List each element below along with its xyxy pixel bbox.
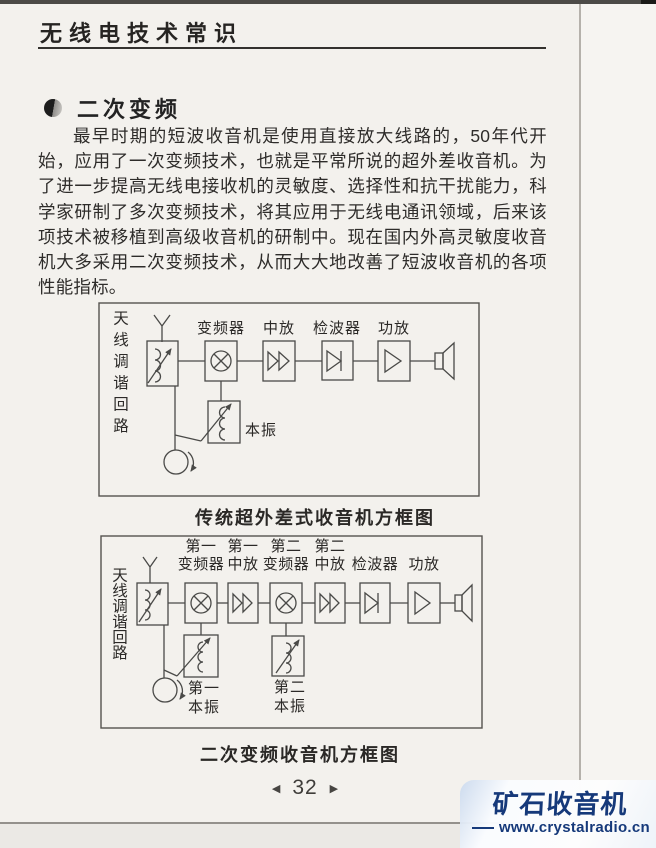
figure1-local-osc-label: 本振: [245, 421, 277, 440]
figure1-block-diagram: 天线调谐回路 变频器 中放 检波器 功放 本振: [98, 302, 480, 497]
tuning-gang-icon: [153, 678, 177, 702]
figure2-osc2-label-bottom: 本振: [274, 697, 306, 716]
section-title: 二次变频: [77, 92, 181, 124]
prev-page-icon: ◀: [272, 782, 280, 795]
gang-rotation-arrow: [188, 452, 193, 471]
power-amp-block: [408, 583, 440, 623]
diode-symbol-icon: [365, 593, 378, 613]
section-heading: 二次变频: [44, 92, 181, 124]
osc2-variable-arrow: [276, 640, 299, 673]
tuning-block: [147, 341, 178, 386]
header-rule: [38, 47, 546, 49]
if1-symbol-icon: [233, 594, 242, 612]
body-paragraph: 最早时期的短波收音机是使用直接放大线路的，50年代开始，应用了一次变频技术，也就…: [38, 124, 547, 300]
page-footer: ◀ 32 ▶: [230, 776, 380, 800]
figure2-caption: 二次变频收音机方框图: [110, 741, 490, 767]
page-number: 32: [292, 776, 317, 800]
scanned-book-page: 无线电技术常识 二次变频 最早时期的短波收音机是使用直接放大线路的，50年代开始…: [0, 0, 656, 848]
antenna-icon: [154, 315, 170, 342]
figure2-osc1-label-bottom: 本振: [188, 698, 220, 717]
watermark-rule: [472, 827, 494, 829]
figure2-osc1-label-top: 第一: [188, 679, 220, 698]
antenna-icon: [143, 557, 157, 583]
figure2-antenna-tuning-label: 天线调谐回路: [107, 567, 129, 660]
page-edge-line: [579, 4, 581, 822]
tuning-gang-icon: [164, 450, 188, 474]
osc1-variable-arrow: [177, 638, 210, 676]
figure1-caption: 传统超外差式收音机方框图: [120, 504, 510, 530]
page-title: 无线电技术常识: [40, 16, 243, 48]
amp-symbol-icon: [385, 350, 401, 372]
tuning-variable-arrow: [148, 349, 171, 383]
watermark-url-row: www.crystalradio.cn: [470, 819, 650, 837]
power-amp-block: [378, 341, 410, 381]
amp-symbol-icon: [415, 592, 430, 614]
osc-variable-arrow: [201, 404, 231, 441]
watermark-banner: 矿石收音机 www.crystalradio.cn: [460, 780, 656, 848]
local-osc1-block: [184, 635, 218, 677]
next-page-icon: ▶: [330, 782, 338, 795]
figure2-osc2-label: 第二 本振: [274, 678, 306, 716]
figure2-block-diagram: 天线调谐回路 第一 变频器 第一 中放 第二 变频器 第二 中放 检波器 功放 …: [100, 535, 483, 730]
if-amp-symbol-icon: [268, 352, 278, 370]
diode-symbol-icon: [327, 351, 341, 371]
watermark-url: www.crystalradio.cn: [499, 819, 650, 837]
figure1-shapes: [147, 315, 454, 474]
figure1-antenna-tuning-label: 天线调谐回路: [108, 310, 130, 439]
figure1-power-amp-label: 功放: [358, 317, 430, 338]
gang-rotation-arrow: [177, 680, 182, 699]
figure2-power-amp-label-text: 功放: [388, 556, 460, 574]
speaker-icon: [435, 343, 454, 379]
section-bullet-icon: [44, 99, 62, 117]
figure2-if2-label-top: 第二: [294, 538, 366, 556]
figure2-osc1-label: 第一 本振: [188, 679, 220, 717]
scan-top-edge: [0, 0, 656, 4]
speaker-icon: [455, 585, 472, 621]
tuning-coil-icon: [145, 590, 150, 620]
page-right-margin: [581, 4, 656, 822]
watermark-brand: 矿石收音机: [469, 789, 651, 819]
figure2-power-amp-label: 功放: [388, 556, 460, 574]
if2-symbol-icon: [320, 594, 329, 612]
figure2-osc2-label-top: 第二: [274, 678, 306, 697]
